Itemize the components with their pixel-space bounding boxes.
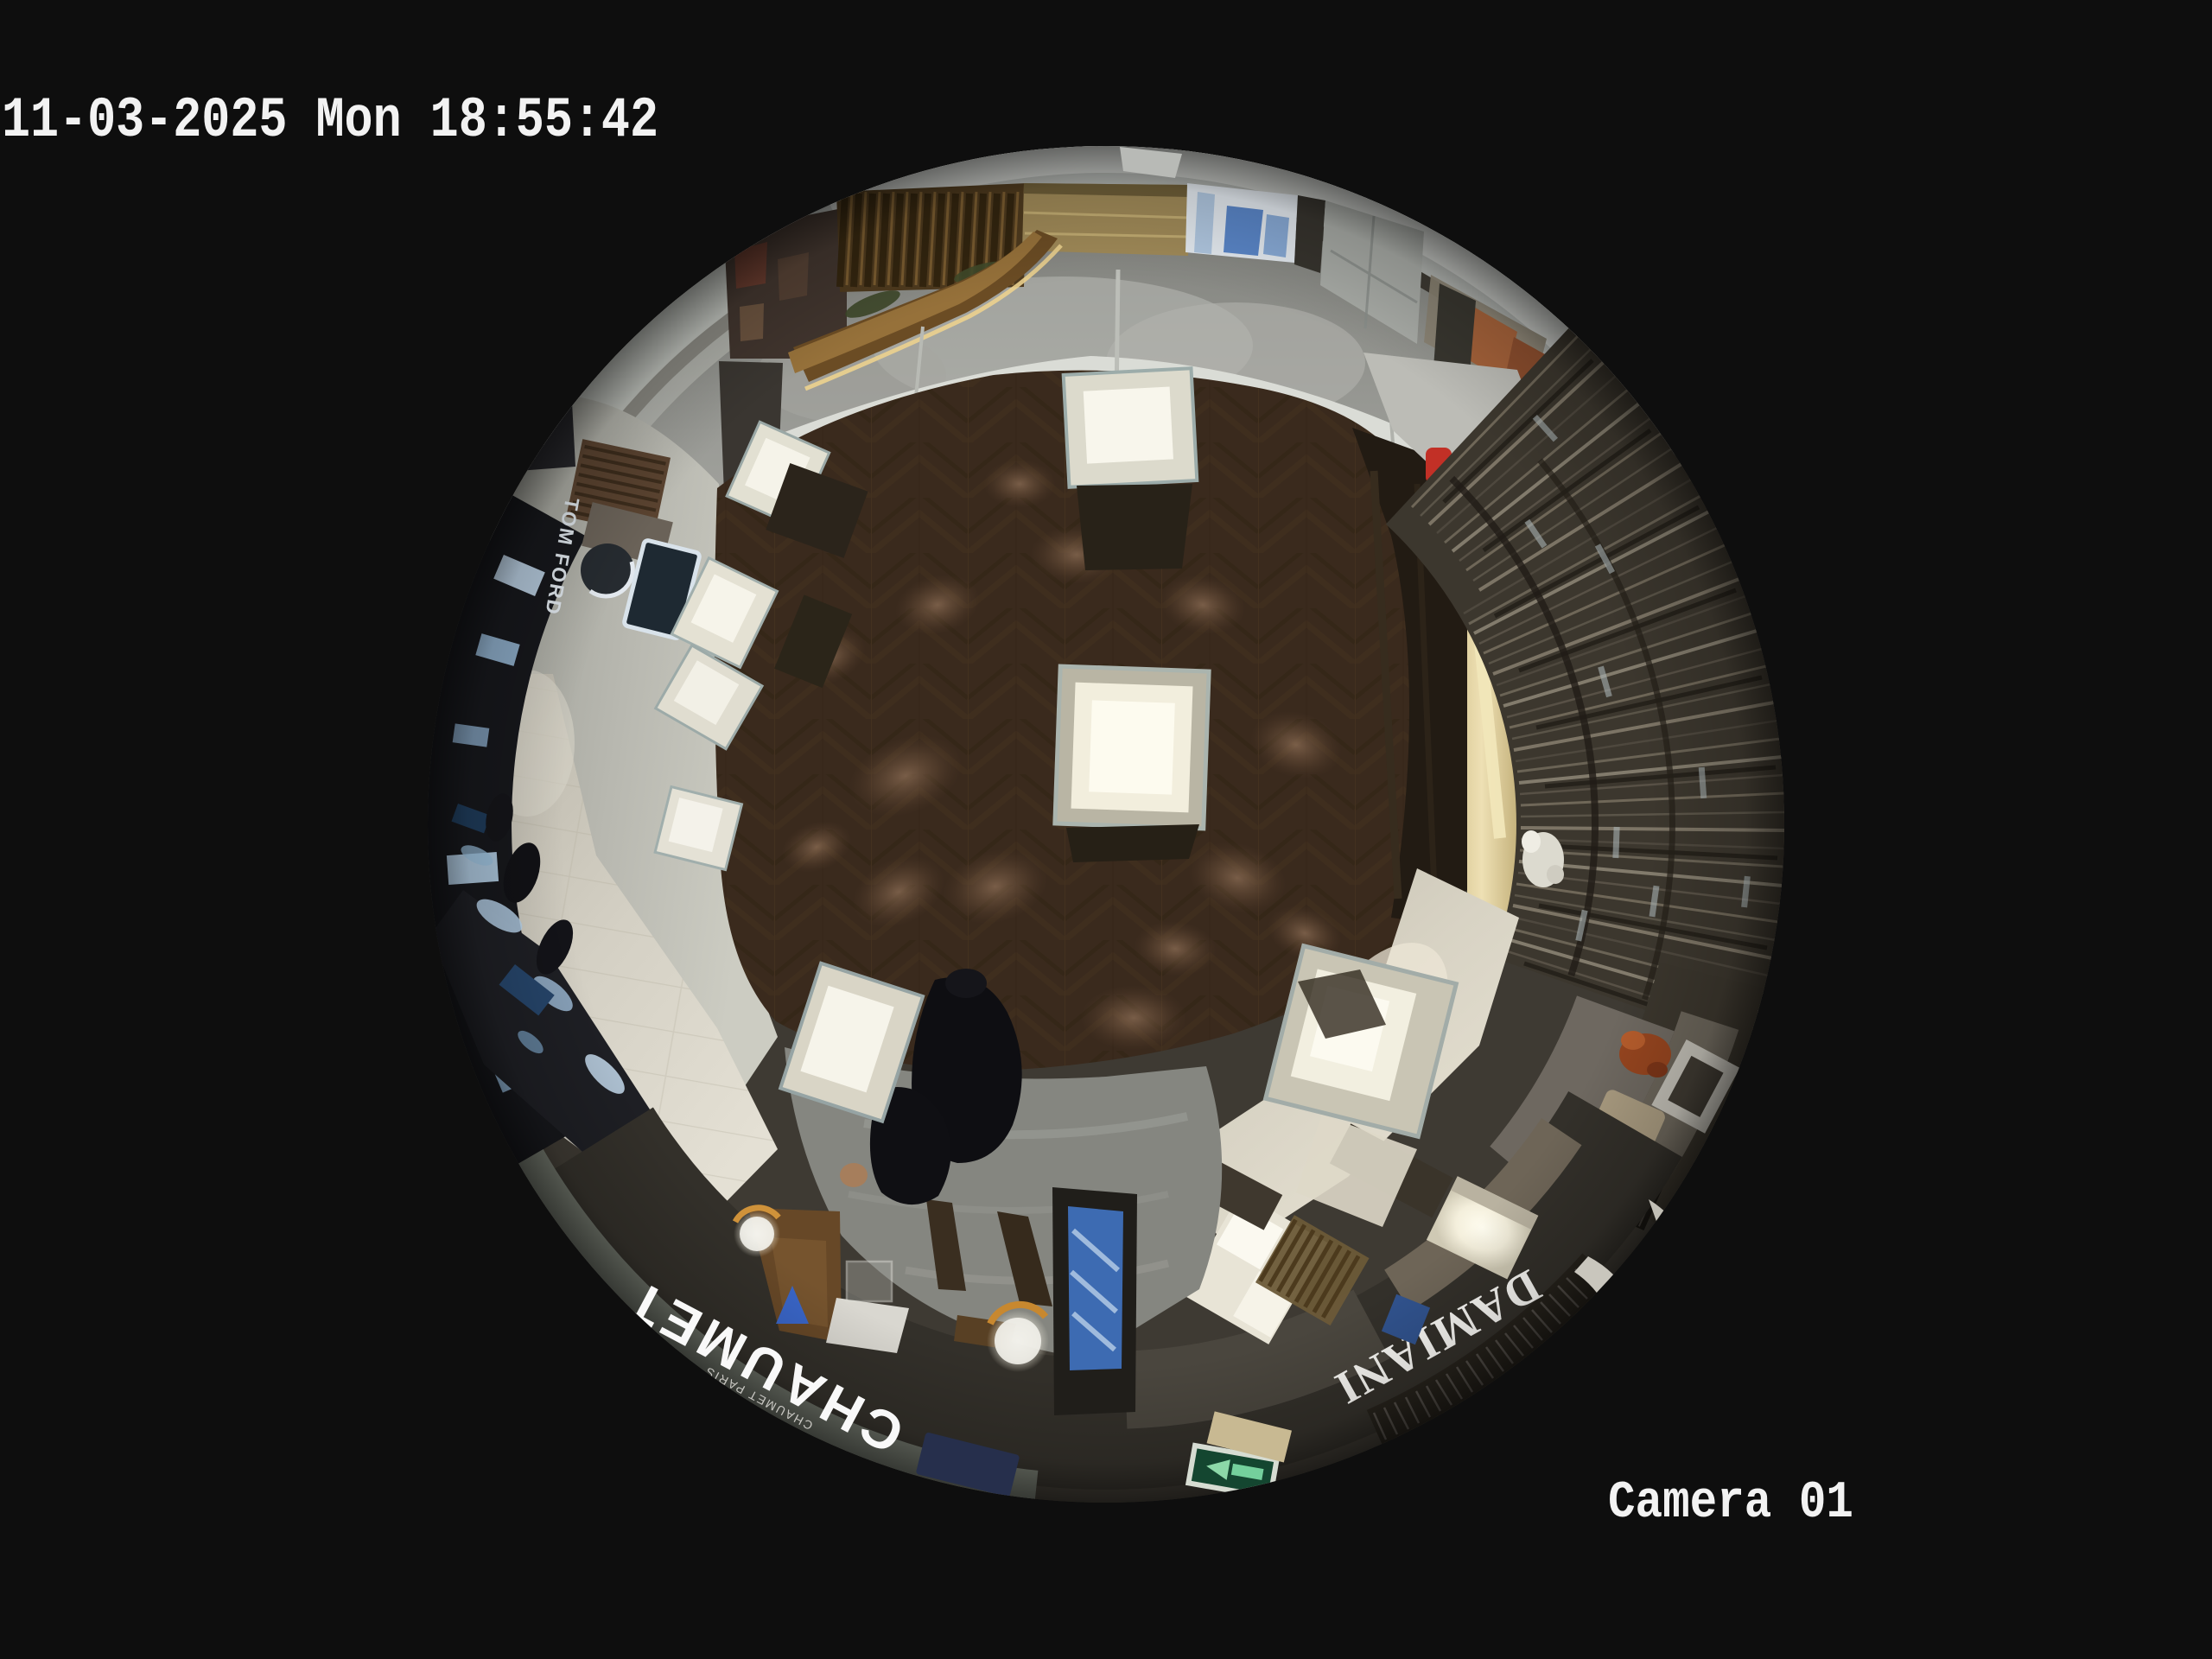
svg-text:11-03-2025 Mon 18:55:42: 11-03-2025 Mon 18:55:42 (2, 88, 658, 153)
svg-text:Camera 01: Camera 01 (1608, 1474, 1853, 1533)
